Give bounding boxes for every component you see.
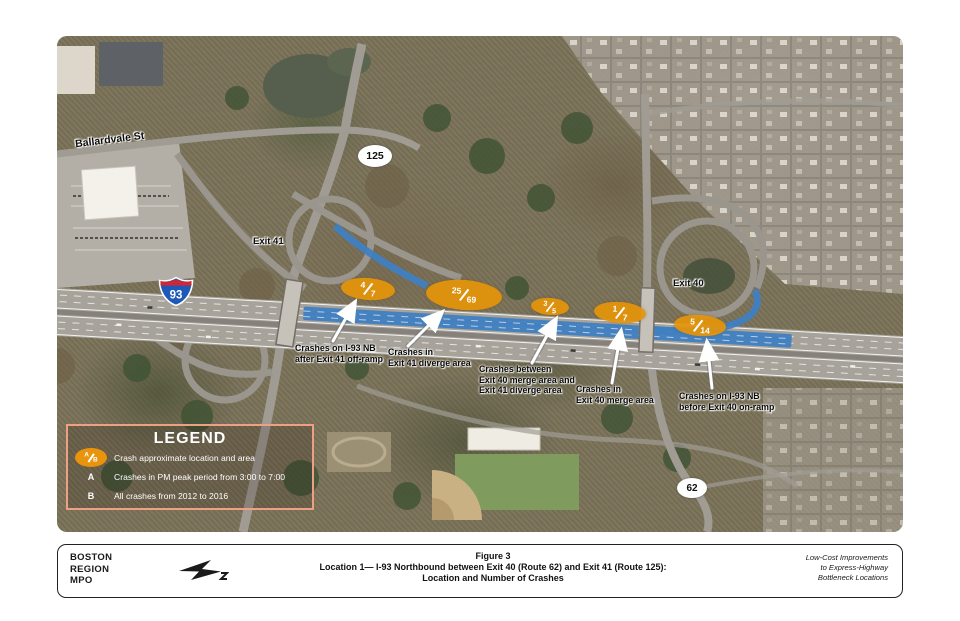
callout-after-exit41-offramp: Crashes on I-93 NBafter Exit 41 off-ramp: [295, 343, 383, 364]
legend-key-a: A: [88, 472, 95, 482]
commercial-area: [57, 42, 195, 288]
crash-fraction: 514: [690, 320, 711, 331]
route62-bridge: [639, 288, 655, 352]
legend-row-a: A Crashes in PM peak period from 3:00 to…: [68, 467, 312, 486]
route-125-marker: 125: [358, 145, 392, 167]
aerial-map: Ballardvale St Exit 41 Exit 40 125 62 93…: [57, 36, 903, 532]
figure-number: Figure 3: [248, 551, 738, 562]
figure-page: Ballardvale St Exit 41 Exit 40 125 62 93…: [0, 0, 960, 621]
residential-area-se: [763, 388, 903, 532]
figure-subtitle: Location and Number of Crashes: [248, 573, 738, 584]
exit41-loop-ramp: [289, 199, 371, 281]
crash-fraction: 17: [612, 307, 628, 318]
legend-row-symbol: AB Crash approximate location and area: [68, 448, 312, 467]
mpo-name: BOSTON REGION MPO: [58, 545, 158, 597]
figure-title: Figure 3 Location 1— I-93 Northbound bet…: [248, 545, 738, 597]
store-building: [81, 166, 138, 220]
legend: LEGEND AB Crash approximate location and…: [66, 424, 314, 510]
i93-shield: 93: [158, 276, 194, 307]
dark-roof-building: [99, 42, 163, 86]
crash-fraction: 35: [543, 302, 557, 311]
route-125-number: 125: [366, 150, 384, 162]
project-name: Low-Cost Improvements to Express-Highway…: [738, 545, 902, 597]
figure-location-line: Location 1— I-93 Northbound between Exit…: [248, 562, 738, 573]
callout-between-merge-diverge: Crashes betweenExit 40 merge area andExi…: [479, 364, 575, 396]
exit-40-label: Exit 40: [673, 278, 704, 289]
legend-crash-ellipse-icon: AB: [75, 448, 107, 467]
crash-fraction: 2569: [451, 289, 477, 301]
legend-key-b: B: [88, 491, 95, 501]
route-62-number: 62: [686, 483, 697, 494]
crash-fraction: 47: [360, 283, 376, 294]
route-62-marker: 62: [677, 478, 707, 498]
mpo-logo-icon: [177, 558, 229, 584]
legend-label-symbol: Crash approximate location and area: [114, 453, 255, 463]
callout-before-exit40-onramp: Crashes on I-93 NBbefore Exit 40 on-ramp: [679, 391, 774, 412]
mpo-logo: [158, 545, 248, 597]
legend-title: LEGEND: [68, 430, 312, 448]
callout-exit41-diverge: Crashes inExit 41 diverge area: [388, 347, 471, 368]
legend-label-a: Crashes in PM peak period from 3:00 to 7…: [114, 472, 285, 482]
exit-41-label: Exit 41: [253, 236, 284, 247]
legend-row-b: B All crashes from 2012 to 2016: [68, 486, 312, 505]
i93-number: 93: [170, 290, 183, 302]
title-block: BOSTON REGION MPO Figure 3 Location 1— I…: [57, 544, 903, 598]
legend-label-b: All crashes from 2012 to 2016: [114, 491, 228, 501]
school-grounds: [327, 428, 579, 520]
callout-exit40-merge: Crashes inExit 40 merge area: [576, 384, 654, 405]
